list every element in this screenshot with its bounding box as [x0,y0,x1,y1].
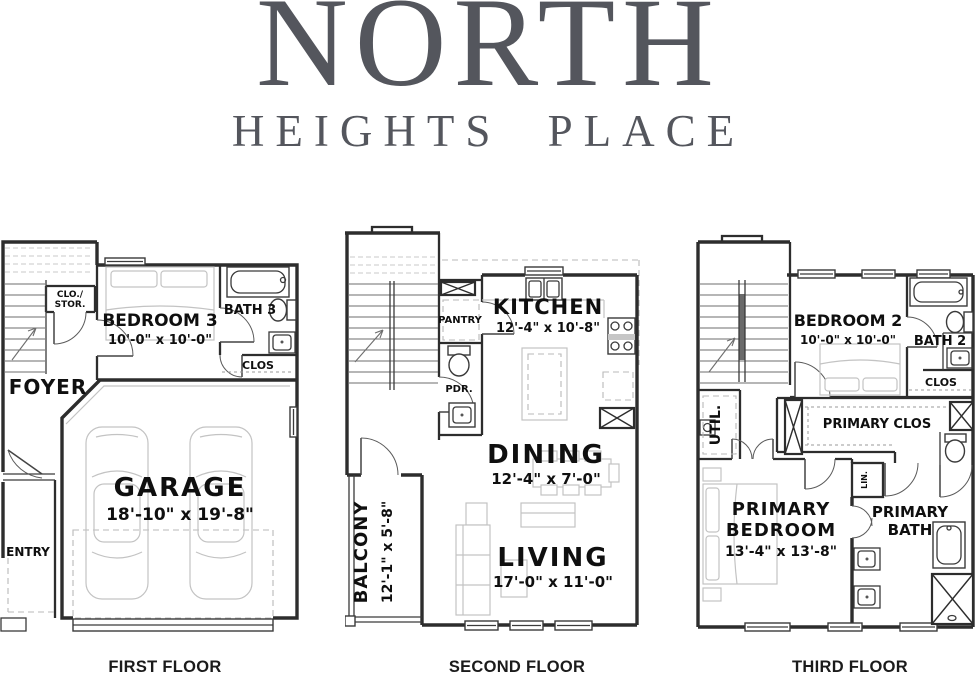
staircase [699,280,788,383]
tv-console-icon [521,503,575,527]
first-floor-plan: CLO./ STOR. BEDROOM 3 10'-0" x 10'-0" BA… [0,222,335,655]
third-floor-labels: BEDROOM 2 10'-0" x 10'-0" BATH 2 CLOS UT… [708,311,966,560]
side-table-icon [466,503,487,525]
primary-bedroom-label-line2: BEDROOM [726,520,836,541]
bathtub-icon [933,522,965,568]
garage-dim: 18'-10" x 19'-8" [106,505,254,525]
dining-label: DINING [487,440,605,470]
shower-icon [932,574,973,624]
bedroom3-dim: 10'-0" x 10'-0" [108,333,212,348]
living-label: LIVING [497,543,608,573]
bath2-label: BATH 2 [914,334,966,349]
bath3-label: BATH 3 [224,303,276,318]
lin-label: LIN. [860,471,869,489]
toilet-icon [448,346,470,376]
bedroom2-label: BEDROOM 2 [794,311,903,330]
toilet-icon [947,312,974,333]
foyer-label: FOYER [9,375,88,399]
pantry-label: PANTRY [438,315,482,326]
kitchen-island [522,348,567,420]
kitchen-dim: 12'-4" x 10'-8" [496,321,600,336]
clos-stor-label-line2: STOR. [55,300,86,310]
pdr-label: PDR. [445,384,472,395]
stair-rail [739,294,745,360]
bedroom3-label: BEDROOM 3 [102,311,217,331]
first-floor-drawing: CLO./ STOR. BEDROOM 3 10'-0" x 10'-0" BA… [0,222,335,655]
entry-label: ENTRY [6,545,50,559]
second-floor-drawing: PANTRY KITCHEN 12'-4" x 10'-8" PDR. DINI… [345,222,670,655]
kitchen-label: KITCHEN [493,295,603,319]
title-line2: HEIGHTS PLACE [0,109,977,154]
garage-door [73,619,273,631]
dining-dim: 12'-4" x 7'-0" [491,470,601,488]
vent-shaft [441,282,475,295]
vent-shaft [950,402,973,430]
double-sink-icon [854,548,880,608]
primary-clos-label: PRIMARY CLOS [823,417,931,432]
title-line1: NORTH [0,0,977,107]
clos-stor-label-line1: CLO./ [57,290,84,300]
second-floor-caption: SECOND FLOOR [410,657,623,677]
second-floor-plan: PANTRY KITCHEN 12'-4" x 10'-8" PDR. DINI… [345,222,670,655]
garage-label: GARAGE [114,473,247,503]
balcony-label: BALCONY [351,501,372,604]
entry-step [1,618,26,631]
balcony-dim: 12'-1" x 5'-8" [380,501,396,603]
primary-bedroom-dim: 13'-4" x 13'-8" [725,544,837,560]
sink-icon [269,332,295,353]
staircase [349,257,438,390]
third-floor-caption: THIRD FLOOR [743,657,956,677]
bathtub-icon [227,267,289,297]
bathtub-icon [910,278,967,306]
first-floor-caption: FIRST FLOOR [58,657,271,677]
primary-bath-label-line2: BATH [888,521,933,539]
sink-icon [947,348,973,368]
clos-label: CLOS [925,376,957,389]
toilet-icon [945,434,966,462]
vent-shaft [785,400,802,454]
bed-icon [820,344,900,395]
third-floor-drawing: BEDROOM 2 10'-0" x 10'-0" BATH 2 CLOS UT… [695,222,977,655]
primary-bath-label-line1: PRIMARY [872,503,949,521]
bedroom2-dim: 10'-0" x 10'-0" [800,333,896,347]
plan-title: NORTH HEIGHTS PLACE [0,0,977,154]
third-floor-plan: BEDROOM 2 10'-0" x 10'-0" BATH 2 CLOS UT… [695,222,977,655]
living-dim: 17'-0" x 11'-0" [493,573,613,591]
clos-label: CLOS [242,359,274,372]
util-label: UTIL. [708,405,724,445]
vent-shaft [600,408,634,428]
sink-icon [449,403,475,427]
primary-bedroom-label-line1: PRIMARY [732,499,831,520]
refrigerator-icon [603,372,633,400]
sofa-icon [456,525,490,615]
first-floor-walls [3,242,297,618]
stove-icon [608,318,635,354]
